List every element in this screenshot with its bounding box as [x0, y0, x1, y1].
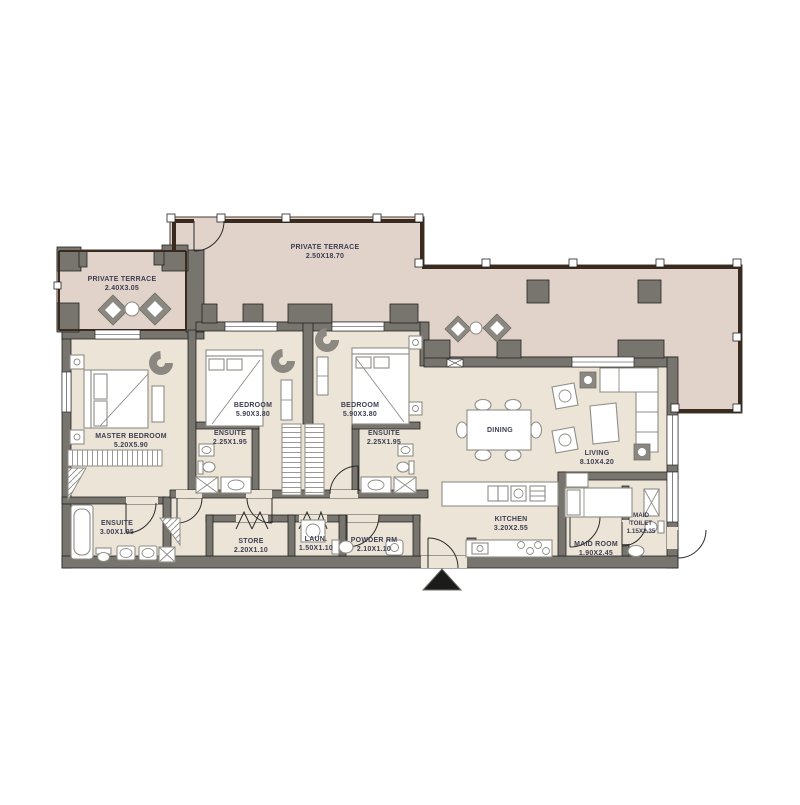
- entrance-arrow-icon: [423, 569, 461, 590]
- side-exterior-door: [678, 530, 706, 558]
- floor-plan-page: PRIVATE TERRACE2.40X3.05 PRIVATE TERRACE…: [0, 0, 800, 800]
- coffee-table: [590, 403, 619, 444]
- label-dining: DINING: [487, 427, 513, 434]
- master-wardrobe: [68, 450, 162, 466]
- floor-plan-canvas: PRIVATE TERRACE2.40X3.05 PRIVATE TERRACE…: [0, 0, 800, 800]
